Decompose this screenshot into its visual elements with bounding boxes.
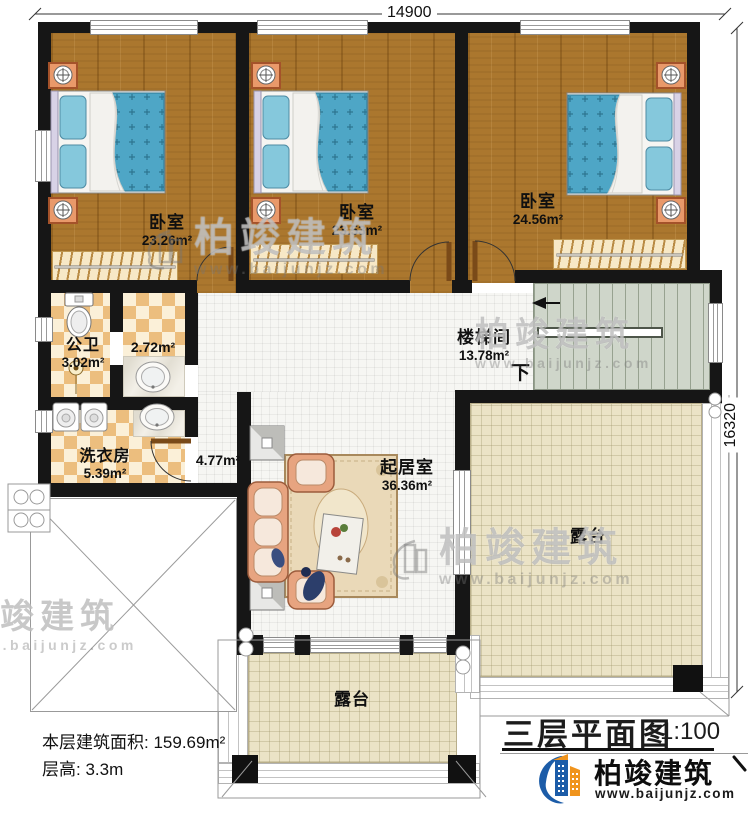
window [35, 410, 53, 433]
terrace-bottom-label: 露台 [334, 690, 370, 710]
sliding-door [310, 637, 400, 653]
dimension-top: 14900 [382, 4, 437, 22]
bed-icon [50, 90, 166, 194]
window [35, 317, 53, 342]
wardrobe-icon [553, 239, 686, 269]
floor-area-info: 本层建筑面积: 159.69m² 层高: 3.3m [42, 729, 225, 783]
stair-down-label: 下 [511, 358, 530, 385]
wall-segment [198, 22, 257, 33]
window [413, 637, 447, 653]
bedroom-right-label: 卧室 24.56m² [513, 192, 563, 227]
floor-plan-page: { "dimensions": { "top": "14900", "right… [0, 0, 750, 814]
dimension-right: 16320 [722, 398, 740, 453]
wall-segment [295, 635, 310, 655]
brand-tick-stroke [734, 757, 745, 770]
bedroom-middle-label: 卧室 23.53m² [332, 203, 382, 238]
sink-icon [134, 360, 172, 394]
wall-segment [455, 33, 468, 280]
terrace-column [232, 755, 258, 783]
window [257, 20, 368, 35]
lower-roof [30, 498, 237, 712]
wall-segment [455, 390, 722, 403]
window [90, 20, 198, 35]
nightstand-icon [48, 62, 78, 89]
stair-handrail [537, 327, 663, 338]
stairwell-label: 楼梯间 13.78m² [457, 328, 511, 363]
corridor-floor [198, 392, 237, 483]
nightstand-icon [48, 197, 78, 224]
plan-scale: 1:100 [660, 718, 720, 746]
terrace-column [673, 665, 703, 692]
wall-segment [185, 410, 198, 437]
closet-label: 2.72m² [131, 339, 175, 355]
window [708, 303, 723, 363]
wall-segment [110, 293, 123, 332]
wall-segment [455, 575, 470, 635]
sink-icon [138, 402, 176, 432]
wardrobe-icon [52, 251, 178, 281]
floor-height-line: 层高: 3.3m [42, 756, 225, 783]
brand-url: www.baijunjz.com [595, 786, 736, 801]
wall-segment [185, 293, 198, 365]
window [520, 20, 630, 35]
wall-segment [38, 483, 247, 497]
nightstand-icon [656, 197, 686, 224]
window [263, 637, 295, 653]
wall-segment [447, 635, 470, 655]
wall-segment [400, 635, 413, 655]
brand-logo-icon [531, 752, 589, 806]
corridor-label: 4.77m² [196, 452, 240, 468]
nightstand-icon [251, 62, 281, 89]
washing-machines-icon [52, 402, 108, 432]
bedroom-left-label: 卧室 23.26m² [142, 213, 192, 248]
wall-segment [110, 365, 123, 397]
wall-segment [687, 22, 700, 283]
wardrobe-icon [250, 244, 378, 274]
wall-segment [452, 280, 472, 293]
wall-segment [236, 33, 249, 280]
floor-area-line: 本层建筑面积: 159.69m² [42, 729, 225, 756]
bed-icon [566, 92, 682, 196]
toilet-icon [62, 292, 96, 340]
public-bath-label: 公卫 3.02m² [62, 337, 105, 371]
wall-segment [237, 635, 263, 655]
bed-icon [253, 90, 369, 194]
wall-segment [710, 363, 722, 390]
wall-segment [515, 270, 722, 283]
laundry-label: 洗衣房 5.39m² [79, 448, 130, 482]
wall-segment [236, 280, 410, 293]
living-room-label: 起居室 36.36m² [380, 458, 434, 493]
window [453, 470, 471, 575]
nightstand-icon [251, 197, 281, 224]
sofa-set-icon [240, 418, 402, 618]
nightstand-icon [656, 62, 686, 89]
wall-segment [455, 403, 470, 470]
wall-segment [368, 22, 520, 33]
title-underline [502, 748, 714, 751]
terrace-column [448, 755, 476, 783]
wall-segment [710, 283, 722, 303]
terrace-right-label: 露台 [570, 527, 606, 547]
